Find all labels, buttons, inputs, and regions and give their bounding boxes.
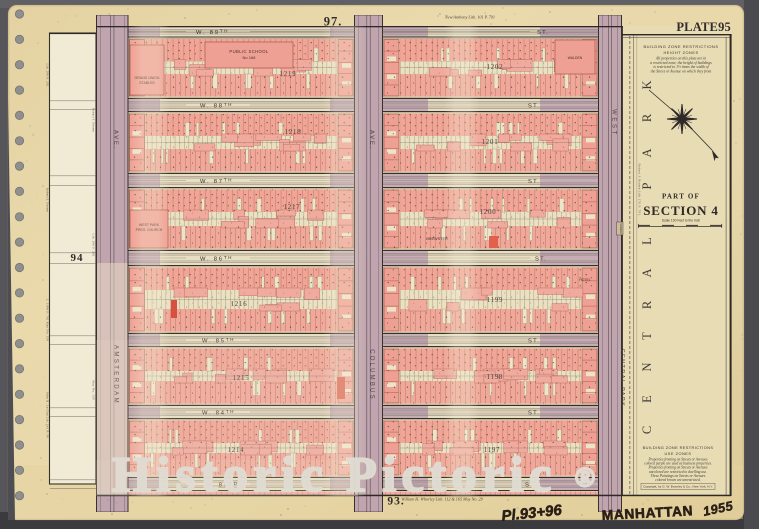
- svg-text:1198: 1198: [487, 374, 504, 381]
- svg-text:ST.: ST.: [528, 103, 540, 109]
- svg-text:AVE.: AVE.: [369, 130, 375, 150]
- svg-text:COLUMBUS: COLUMBUS: [369, 349, 375, 401]
- svg-text:the Street or Avenue on which: the Street or Avenue on which they front: [651, 69, 713, 73]
- svg-text:ST.: ST.: [535, 256, 547, 262]
- svg-text:1200: 1200: [480, 209, 497, 216]
- svg-text:Copyright, by G. W. Bromley &: Copyright, by G. W. Bromley & Co., New Y…: [643, 485, 713, 489]
- svg-text:colored brown are unrestricted: colored brown are unrestricted.: [655, 478, 700, 482]
- svg-text:No 166: No 166: [243, 55, 257, 60]
- svg-text:BUILDING ZONE RESTRICTIONS: BUILDING ZONE RESTRICTIONS: [643, 445, 714, 450]
- svg-text:1201: 1201: [482, 139, 499, 146]
- svg-text:L: L: [640, 237, 654, 245]
- svg-text:1217: 1217: [284, 204, 301, 211]
- svg-text:K: K: [640, 80, 654, 89]
- svg-text:Robert J. Brown: Robert J. Brown: [92, 108, 96, 133]
- svg-text:ST.: ST.: [537, 30, 549, 36]
- svg-text:Lib. 296 P. 292: Lib. 296 P. 292: [92, 233, 96, 256]
- svg-text:R: R: [640, 113, 654, 122]
- svg-text:HEIGHT ZONES: HEIGHT ZONES: [663, 50, 698, 55]
- svg-text:N: N: [640, 362, 654, 371]
- svg-text:Robert J. Brown: Robert J. Brown: [46, 188, 50, 213]
- svg-text:T: T: [640, 332, 654, 340]
- svg-text:1219: 1219: [280, 71, 297, 78]
- svg-text:USE ZONES: USE ZONES: [665, 451, 692, 456]
- svg-text:CENTRAL PARK: CENTRAL PARK: [619, 349, 625, 408]
- svg-text:1216: 1216: [231, 301, 248, 308]
- svg-text:L. 1096 P. 781 May No. 159: L. 1096 P. 781 May No. 159: [46, 299, 50, 342]
- svg-text:Historic Pictoric ®: Historic Pictoric ®: [112, 446, 600, 502]
- svg-text:ST.: ST.: [528, 410, 540, 416]
- svg-text:1218: 1218: [285, 129, 302, 136]
- svg-text:PLATE95: PLATE95: [676, 20, 731, 34]
- svg-text:PUBLIC SCHOOL: PUBLIC SCHOOL: [229, 49, 268, 54]
- svg-text:C: C: [640, 426, 654, 434]
- svg-text:SUBWAY: SUBWAY: [619, 223, 623, 235]
- svg-text:PART OF: PART OF: [662, 193, 700, 201]
- svg-text:94: 94: [71, 252, 84, 264]
- svg-text:Scale 100 Feet to the Inch: Scale 100 Feet to the Inch: [662, 219, 701, 223]
- svg-text:ST.: ST.: [528, 338, 540, 344]
- svg-text:A: A: [640, 148, 654, 157]
- svg-text:A: A: [640, 268, 654, 277]
- svg-text:ST.: ST.: [528, 179, 540, 185]
- svg-text:R: R: [640, 300, 654, 309]
- svg-text:SECTION 4: SECTION 4: [643, 203, 718, 218]
- svg-text:HOTEL: HOTEL: [579, 278, 590, 282]
- svg-text:P: P: [640, 182, 654, 189]
- svg-text:New Anthony Lith. 101 P. 791: New Anthony Lith. 101 P. 791: [444, 15, 495, 20]
- svg-text:BUILDING ZONE RESTRICTIONS: BUILDING ZONE RESTRICTIONS: [643, 44, 718, 49]
- svg-text:1202: 1202: [487, 64, 504, 71]
- svg-text:WALDEN: WALDEN: [568, 56, 583, 60]
- svg-text:AVE.: AVE.: [113, 130, 119, 150]
- svg-text:May No. 159: May No. 159: [92, 380, 96, 400]
- svg-text:E: E: [640, 395, 654, 403]
- svg-text:1199: 1199: [487, 297, 504, 304]
- svg-text:WEST: WEST: [610, 109, 616, 137]
- svg-text:Lib. 296 P. 292: Lib. 296 P. 292: [46, 63, 50, 86]
